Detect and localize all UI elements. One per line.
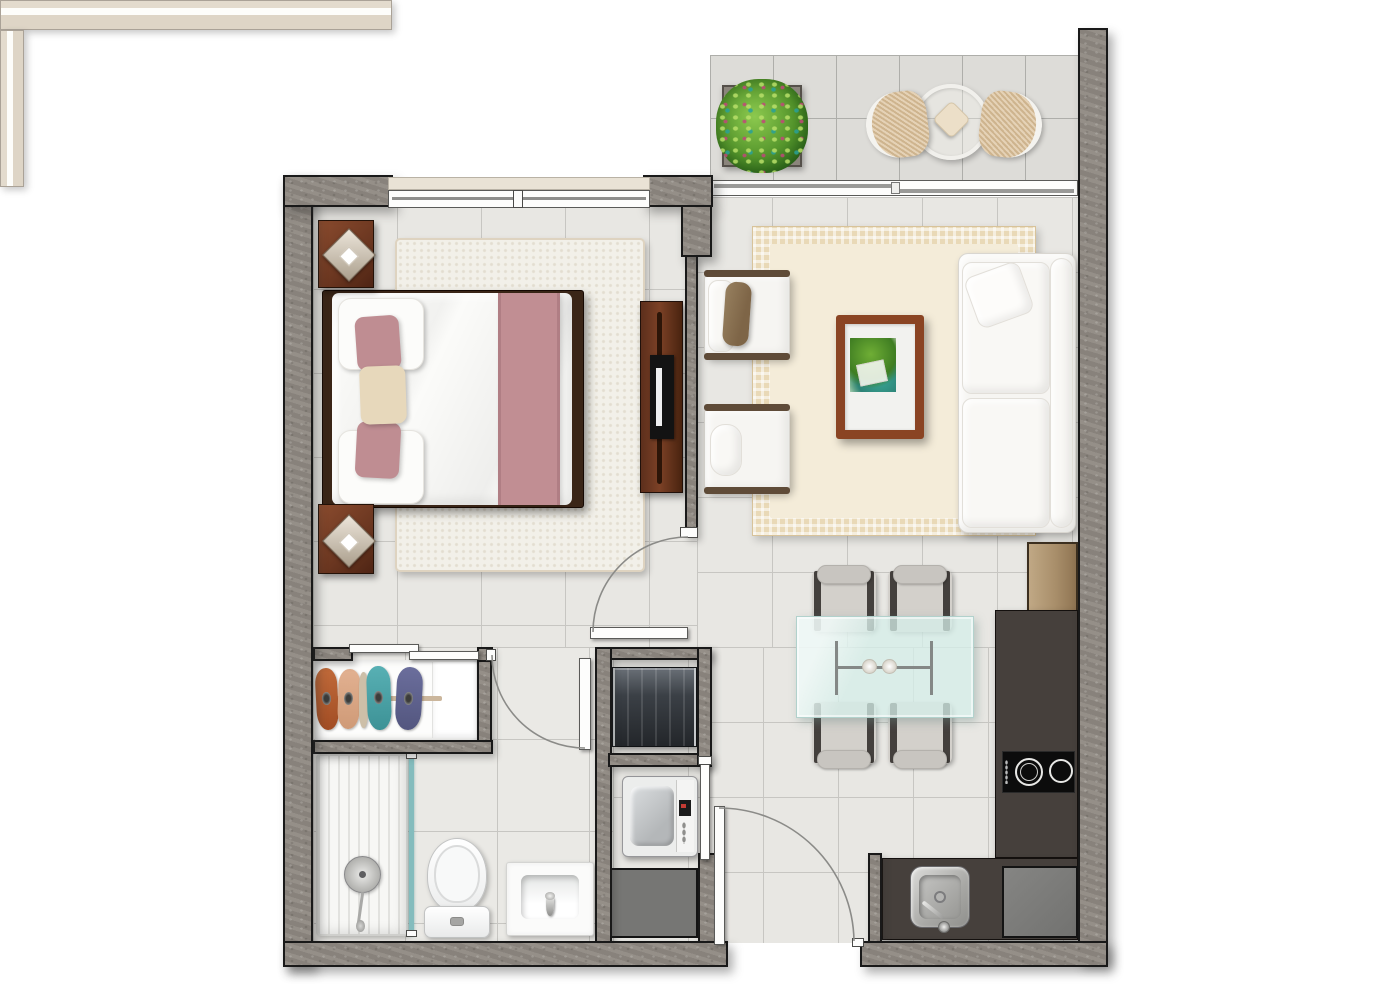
shower-glass-screen (409, 754, 414, 936)
balcony-railing-left (0, 30, 24, 187)
hanger-hook (344, 692, 353, 705)
television (650, 355, 674, 439)
bedroom-window-sill (388, 177, 650, 190)
wall-closet-top-stub (313, 647, 353, 661)
wall-closet-bottom (313, 740, 493, 754)
water-heater-cabinet (612, 667, 697, 747)
bedroom-door-leaf (590, 627, 688, 639)
kitchen-counter-vertical (995, 610, 1078, 858)
laundry-storage-box (608, 868, 698, 938)
lamp-shade-center (339, 247, 359, 267)
television-screen (656, 368, 662, 426)
hanger-hook (404, 691, 414, 704)
side-cabinet-wood (1027, 542, 1078, 612)
garment-navy (394, 666, 423, 730)
balcony-sliding-door-track-right (896, 189, 1074, 193)
apartment-floor-plan (0, 0, 1400, 1000)
kitchen-sink-drain (934, 891, 946, 903)
bathroom-door-leaf (579, 658, 591, 750)
sofa-back-cushions (1050, 258, 1073, 528)
kitchen-appliance (1002, 866, 1078, 938)
dining-table-knob-2 (882, 659, 897, 674)
bathroom-faucet-knob (545, 892, 555, 900)
bedroom-window-mullion (513, 190, 523, 208)
washing-machine-display-led (681, 804, 686, 808)
shower-tray (316, 754, 408, 936)
tv-console-slit-top (657, 312, 662, 358)
tv-console-slit-bottom (657, 436, 662, 484)
chair-backrest (893, 565, 947, 584)
kitchen-faucet-base (938, 921, 950, 933)
laundry-door-leaf (700, 763, 710, 860)
armchair-bottom-armrest-lower (704, 487, 790, 494)
balcony-plant-speckle (716, 79, 808, 173)
cooktop-burner-large-inner (1020, 763, 1038, 781)
bed-pillow-mauve-bottom (355, 421, 402, 479)
garment-tan (337, 669, 361, 730)
chair-backrest (817, 565, 871, 584)
hanger-hook (374, 691, 383, 704)
garment-teal (366, 666, 392, 731)
armchair-bottom-armrest-upper (704, 404, 790, 411)
armchair-top-armrest-upper (704, 270, 790, 277)
wall-laundry-right-upper (697, 647, 712, 767)
lamp-shade-center (339, 533, 359, 553)
bathroom-door-latch-jamb (486, 649, 496, 661)
cooktop-burner-small (1049, 759, 1073, 783)
armchair-top-armrest-lower (704, 353, 790, 360)
garment-orange (314, 667, 339, 730)
toilet-seat (434, 845, 480, 903)
entry-door-leaf (714, 806, 725, 945)
cooktop-controls (1005, 760, 1008, 784)
wall-right (1078, 28, 1108, 962)
sofa-seat-cushion-bottom (962, 398, 1050, 528)
washing-machine-display (679, 800, 691, 816)
wall-bottom-right (860, 941, 1108, 967)
shower-screen-cap-bottom (406, 930, 417, 937)
balcony-sliding-door-handle (891, 182, 900, 194)
hanger-hook (322, 692, 332, 705)
armchair-bottom-roll-cushion (710, 424, 742, 476)
balcony-railing-top (0, 0, 392, 30)
shower-drain-center (359, 871, 366, 878)
bedroom-door-hinge-jamb (680, 527, 698, 538)
wall-left (283, 175, 313, 967)
armchair-brown-pillow (722, 281, 752, 347)
bed-pillow-beige (359, 365, 407, 425)
entry-door-latch-jamb (852, 938, 864, 947)
chair-backrest (893, 750, 947, 769)
washing-machine-lid (630, 786, 674, 846)
toilet-flush-button (450, 917, 464, 926)
bed-runner-mauve (498, 293, 560, 505)
laundry-door-hinge (698, 756, 712, 765)
closet-sliding-door-right (409, 651, 479, 660)
chair-backrest (817, 750, 871, 769)
balcony-sliding-door-track-left (714, 184, 898, 188)
wall-bedroom-corner-column (681, 205, 712, 257)
wall-bedroom-living-divider (685, 255, 698, 537)
bed-pillow-mauve-top (354, 315, 402, 372)
shower-wand-head (356, 920, 365, 932)
wall-top-bedroom-right (643, 175, 713, 207)
wall-closet-right (477, 660, 492, 742)
wall-bottom-left (283, 941, 728, 967)
dining-table-knob-1 (862, 659, 877, 674)
wall-top-bedroom-left (283, 175, 393, 207)
wall-bathroom-laundry (595, 647, 612, 943)
washing-machine-buttons (682, 822, 686, 844)
wall-kitchen-sink-stub (868, 853, 882, 945)
